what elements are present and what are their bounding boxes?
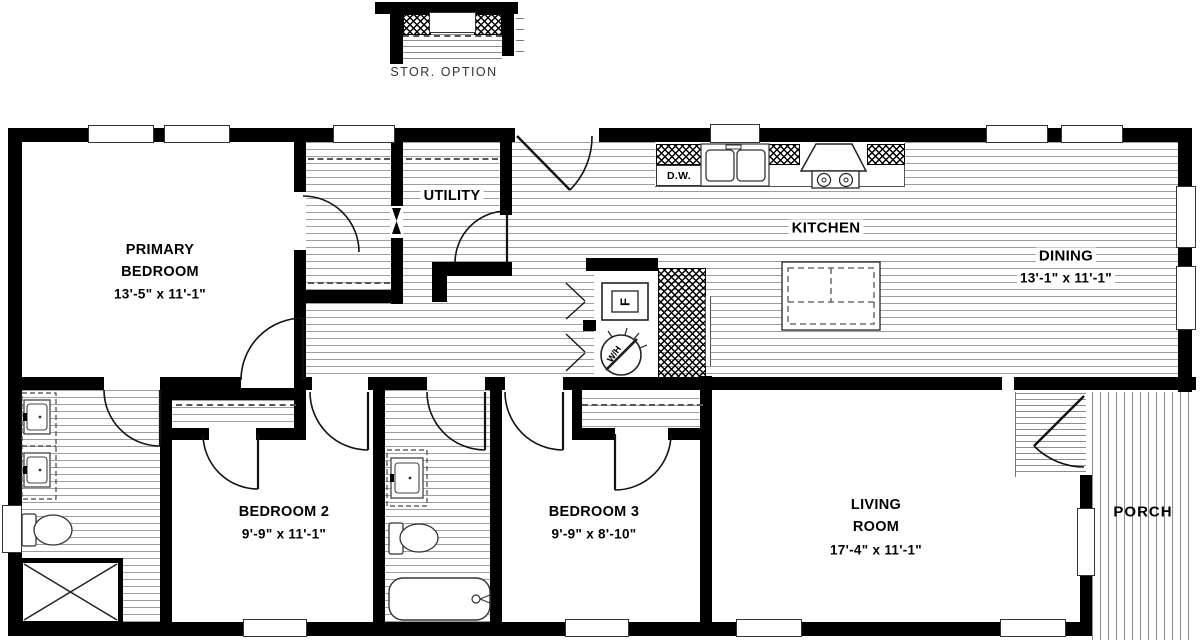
living-room-label-2: ROOM [850,519,902,535]
tick [608,331,612,337]
bedroom2-closet-door [203,434,258,489]
bifold-panel [566,353,585,371]
door-leaf [1034,396,1084,446]
utility-door [455,211,507,263]
utility-label: UTILITY [421,188,484,204]
door-arc [104,390,160,446]
faucet [23,466,27,474]
door-arc [310,392,368,450]
primary-bath-door [104,390,160,446]
floor-plan: STOR. OPTION [0,0,1200,641]
door-arc [615,434,671,490]
door-arc [241,318,303,380]
kitchen-label: KITCHEN [789,220,864,237]
hall-bath-door [427,392,485,450]
bedroom2-dims: 9'-9" x 11'-1" [239,527,329,542]
shower-x [24,564,117,620]
toilet-bowl [400,524,438,552]
porch-label: PORCH [1110,504,1175,521]
hall-vanity [387,450,427,506]
bifold-doors [566,283,585,371]
tick [640,345,647,348]
sink-drain [39,416,42,419]
sink-faucet [726,145,741,149]
bedroom3-closet-door [615,434,671,490]
bathtub [389,578,490,620]
burner-right-center [844,178,848,182]
range [801,144,866,188]
primary-closet-door [303,196,359,252]
door-arc [570,136,592,190]
door-arc [203,434,258,489]
bifold-panel [566,302,585,319]
dining-label: DINING [1036,248,1096,265]
primary-vanity [22,393,56,499]
sink-basin-left [706,150,734,181]
dishwasher-label: D.W. [667,170,691,182]
door-arc [505,392,563,450]
fixtures-overlay: F W/H [0,0,1200,641]
furnace-label: F [618,298,633,306]
bedroom3-door [505,392,563,450]
kitchen-sink [701,144,769,186]
primary-bedroom-door [241,318,303,380]
kitchen-island [782,262,880,330]
faucet [23,413,27,421]
bedroom2-label: BEDROOM 2 [236,504,333,520]
sink-drain [39,469,42,472]
hall-toilet [389,523,438,554]
tick [625,328,627,335]
rear-entry-door [517,136,592,190]
primary-bedroom-dims: 13'-5" x 11'-1" [111,287,209,302]
door-arc [1034,446,1084,467]
primary-bedroom-label-1: PRIMARY [123,242,197,258]
sink-drain [409,477,412,480]
living-room-dims: 17'-4" x 11'-1" [827,543,925,558]
primary-toilet [22,514,72,546]
living-room-label-1: LIVING [848,497,904,513]
range-hood [801,144,866,171]
bedroom3-dims: 9'-9" x 8'-10" [549,527,640,542]
toilet-bowl [34,515,72,545]
faucet [390,474,394,482]
furnace: F [602,283,648,320]
dining-dims: 13'-1" x 11'-1" [1017,271,1115,286]
tub-drain [472,595,480,603]
burner-left-center [822,178,826,182]
door-arc [303,196,359,252]
door-arc [427,392,485,450]
front-entry-door [1034,396,1084,467]
door-arc [455,211,507,263]
sink-basin-right [737,150,765,181]
bedroom3-label: BEDROOM 3 [546,504,643,520]
door-leaf [517,136,570,190]
bedroom2-door [310,392,368,450]
water-heater: W/H [601,328,647,375]
tick [634,333,639,339]
wall-break-symbol [390,206,403,238]
bifold-panel [566,334,585,352]
primary-bedroom-label-2: BEDROOM [118,264,202,280]
bifold-panel [566,283,585,301]
